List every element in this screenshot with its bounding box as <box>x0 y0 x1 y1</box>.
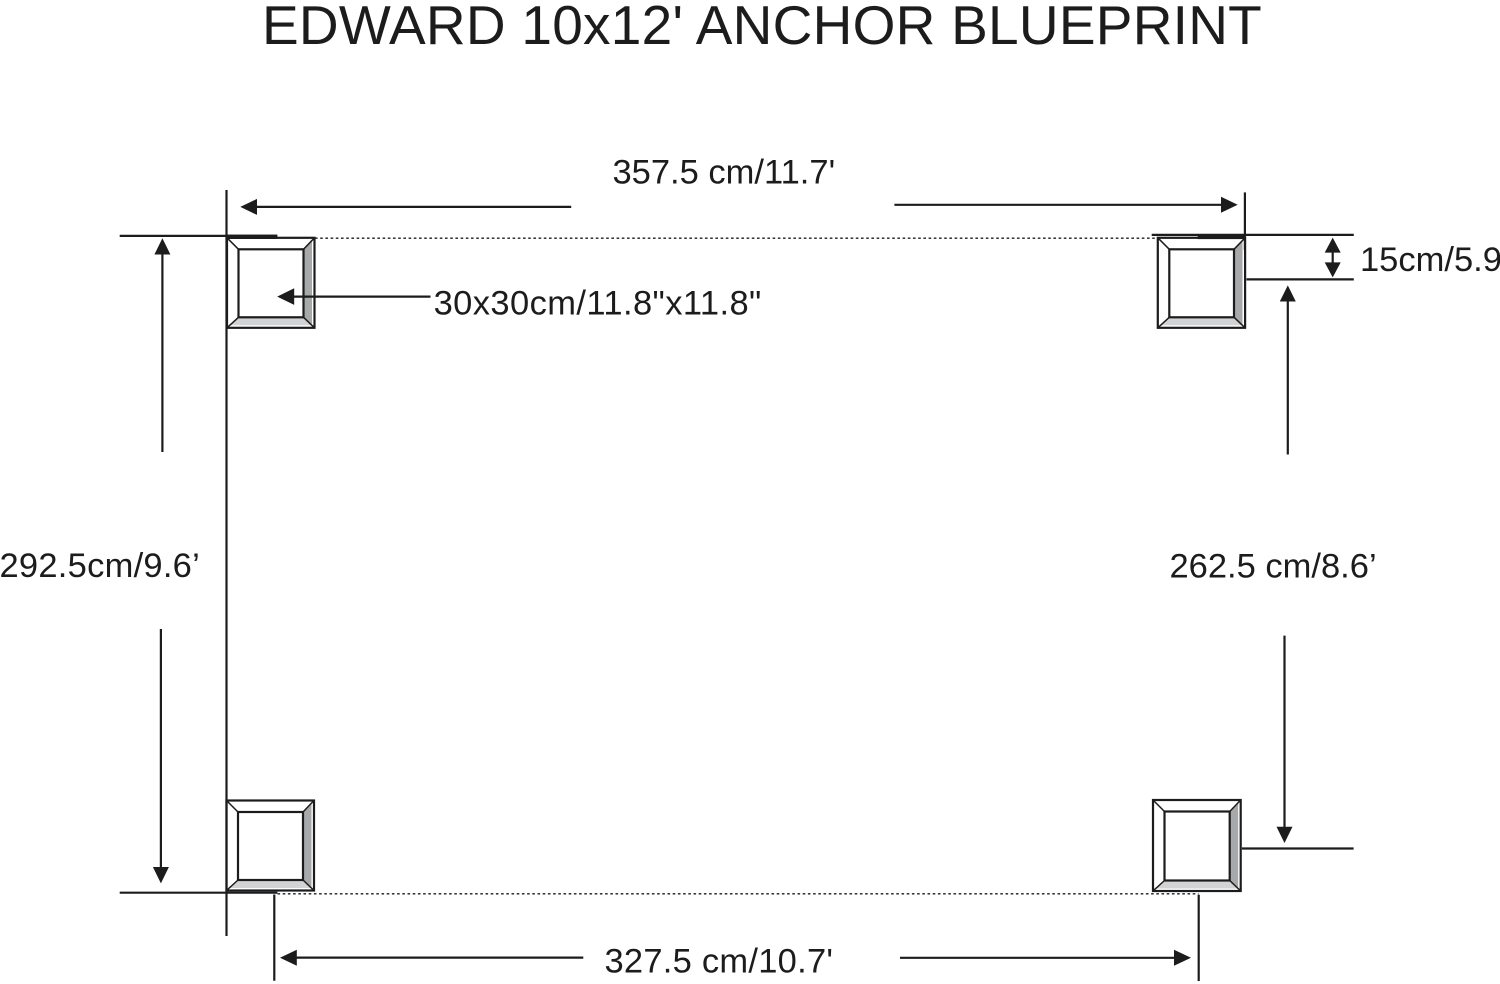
svg-text:327.5 cm/10.7': 327.5 cm/10.7' <box>605 942 834 980</box>
svg-text:357.5 cm/11.7': 357.5 cm/11.7' <box>613 153 836 191</box>
svg-text:262.5 cm/8.6’: 262.5 cm/8.6’ <box>1170 548 1377 586</box>
svg-text:15cm/5.9: 15cm/5.9 <box>1360 241 1500 279</box>
svg-text:EDWARD 10x12' ANCHOR BLUEPRINT: EDWARD 10x12' ANCHOR BLUEPRINT <box>262 0 1262 56</box>
svg-text:30x30cm/11.8"x11.8": 30x30cm/11.8"x11.8" <box>434 285 762 323</box>
svg-text:292.5cm/9.6’: 292.5cm/9.6’ <box>0 547 200 585</box>
